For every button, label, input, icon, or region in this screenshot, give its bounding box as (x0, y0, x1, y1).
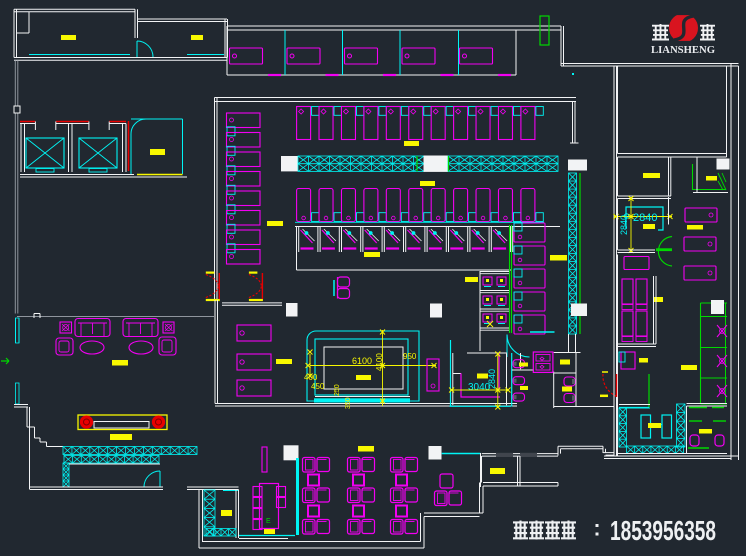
svg-text:LIANSHENG: LIANSHENG (651, 45, 715, 56)
svg-text:450: 450 (311, 382, 325, 391)
svg-text:1853956358: 1853956358 (610, 515, 716, 546)
svg-text:950: 950 (403, 352, 417, 361)
svg-text:2840: 2840 (619, 215, 629, 235)
svg-text:4100: 4100 (375, 353, 384, 371)
svg-text:2840: 2840 (633, 212, 657, 224)
svg-text:400: 400 (304, 373, 318, 382)
svg-text:E: E (266, 518, 271, 525)
svg-text:250: 250 (334, 384, 341, 396)
svg-text:6100: 6100 (352, 356, 372, 366)
svg-text:350: 350 (345, 397, 352, 409)
svg-text:2840: 2840 (487, 369, 497, 389)
